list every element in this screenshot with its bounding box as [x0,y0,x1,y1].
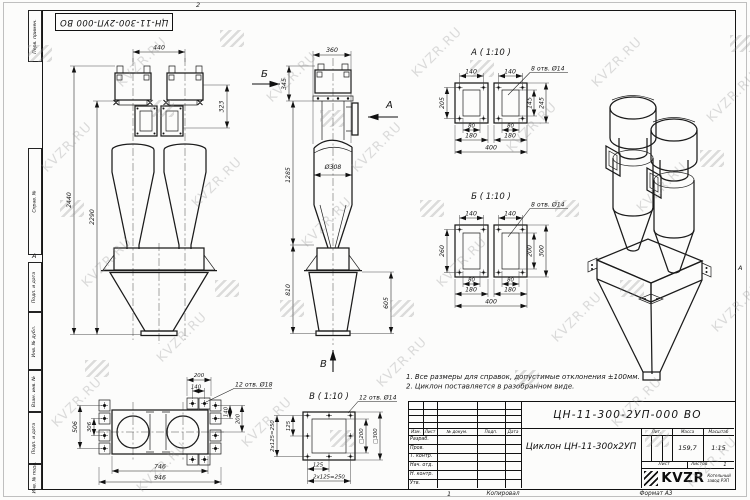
dim-200: 200 [194,373,205,379]
kvzr-logo-mark [644,471,658,486]
tb-header-list: Лист [423,428,437,435]
dim-125: 125 [313,463,324,469]
dim-2440: 2440 [66,192,73,208]
notes: 1. Все размеры для справок, допустимые о… [406,373,640,391]
dim-506: 506 [72,421,79,433]
note-line-2: 2. Циклон поставляется в разобранном вид… [406,383,574,391]
dim-80: 80 [507,278,514,284]
label-a: А [385,100,393,111]
tb-header-izm: Изм. [409,428,423,435]
dim-sq200: □200 [359,428,365,444]
dim-400: 400 [485,145,497,152]
detail-v-title: В ( 1:10 ) [309,392,349,402]
label-b: Б [261,69,268,80]
copied-label: Копировал [463,491,543,497]
tb-row-prov: Пров. [410,444,437,453]
tb-row-nachotd: Нач. отд. [410,461,437,470]
tb-product-title: Циклон ЦН-11-300х2УП [521,428,641,466]
front-view: 440 323 2440 2290 [66,45,230,345]
dim-250: 2х125=250 [270,420,276,452]
dim-180: 180 [465,287,477,294]
dim-946: 946 [154,475,166,482]
holes-note: 8 отв. Ø14 [531,201,565,209]
label-v: В [320,359,327,370]
dim-205: 205 [439,97,446,109]
format-label: Формат А3 [616,491,696,497]
dim-140-right: 140 [224,406,230,417]
tb-sheets-value: 1 [717,461,733,468]
tb-sheet-label: Лист [641,461,687,468]
dim-200-right: 200 [236,413,242,424]
tb-doc-number: ЦН-11-300-2УП-000 ВО [521,402,734,428]
tb-row-nkontr: Н. контр. [410,470,437,479]
tb-mass-label: Масса [672,428,703,435]
dim-345: 345 [281,78,288,90]
dim-140: 140 [191,385,202,391]
holes-note: 12 отв. Ø14 [359,394,397,402]
dim-400: 400 [485,299,497,306]
detail-b-title: Б ( 1:10 ) [471,192,511,202]
dim-323: 323 [219,101,226,113]
tb-sheets-label: Листов [689,461,717,468]
dim-140: 140 [504,69,516,76]
dim-sq300: □300 [373,428,379,444]
tb-row-razrab: Разраб. [410,435,437,444]
dim-180: 180 [465,133,477,140]
dim-140: 140 [465,211,477,218]
dim-200: 200 [527,245,534,257]
dim-360: 360 [326,47,338,54]
dim-140: 140 [465,69,477,76]
dim-746: 746 [154,464,166,471]
dim-245: 245 [539,97,546,109]
dim-145: 145 [527,97,534,109]
tb-mass-value: 159,7 [672,435,703,461]
kvzr-logo-subtitle: Котельный завод РЭП [707,473,730,483]
tb-header-doc: № докум. [437,428,477,435]
dim-180: 180 [504,287,516,294]
detail-view-a: А ( 1:10 ) 140 140 8 отв. Ø14 205 145 24… [439,48,568,154]
kvzr-logo: KVZR Котельный завод РЭП [641,468,734,488]
holes-note: 8 отв. Ø14 [531,65,565,73]
kvzr-logo-text: KVZR [661,470,704,486]
dim-dia308: Ø308 [324,163,342,171]
holes-note: 12 отв. Ø18 [235,381,273,389]
dim-306: 306 [87,421,93,432]
dim-80: 80 [468,278,475,284]
side-view: Б А В 360 345 Ø308 1285 810 605 [252,47,398,372]
title-block: Изм. Лист № докум. Подп. Дата Разраб. Пр… [408,401,736,490]
detail-view-v: В ( 1:10 ) 12 отв. Ø14 125 2х125=250 □20… [270,392,397,484]
drawing-sheet: Перв. примен. Справ. № Подп. и дата Инв.… [0,0,750,500]
isometric-view [588,96,711,381]
dim-2290: 2290 [89,209,96,225]
plan-view: 200 140 12 отв. Ø18 140 200 506 306 746 … [72,373,273,485]
dim-300: 300 [539,245,546,257]
tb-header-podp: Подп. [477,428,505,435]
dim-605: 605 [383,297,390,309]
dim-125: 125 [286,420,292,431]
dim-260: 260 [439,245,446,257]
dim-80: 80 [468,124,475,130]
dim-180: 180 [504,133,516,140]
tb-lit-label: Лит. [641,428,672,435]
tb-row-tkontr: Т. контр. [410,453,437,462]
tb-scale-label: Масштаб [703,428,734,435]
dim-140: 140 [504,211,516,218]
tb-scale-value: 1:15 [703,435,734,461]
tb-header-data: Дата [505,428,521,435]
dim-250: 2х125=250 [313,475,345,481]
note-line-1: 1. Все размеры для справок, допустимые о… [406,373,640,381]
dim-1285: 1285 [285,167,292,183]
kvzr-logo-sub2: завод РЭП [707,478,729,483]
dim-440: 440 [153,45,165,52]
tb-row-utv: Утв. [410,479,437,488]
detail-a-title: А ( 1:10 ) [470,48,511,58]
detail-view-b: Б ( 1:10 ) 140 140 8 отв. Ø14 260 200 30… [439,192,568,308]
dim-810: 810 [285,284,292,296]
dim-80: 80 [507,124,514,130]
